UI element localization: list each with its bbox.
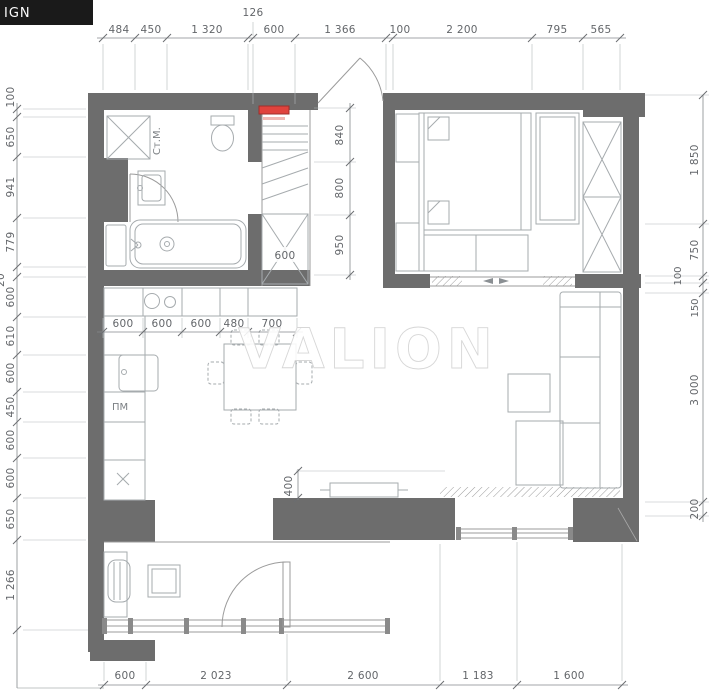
dim-closet: 600 xyxy=(275,250,296,262)
dim-right-0: 1 850 xyxy=(689,144,701,176)
dim-left-7: 450 xyxy=(5,397,17,418)
dim-top-3: 600 xyxy=(264,24,285,36)
dim-left-6: 600 xyxy=(5,363,17,384)
dim-top-4: 1 366 xyxy=(324,24,356,36)
dim-right-2: 100 xyxy=(673,266,684,285)
dim-kitchen-1: 600 xyxy=(152,318,173,330)
sofa xyxy=(560,292,621,488)
duct-shaft xyxy=(104,158,128,222)
dim-top-7: 795 xyxy=(547,24,568,36)
dresser xyxy=(536,113,579,224)
dim-bottom-3: 1 183 xyxy=(462,670,494,682)
partition-hatch-right xyxy=(543,276,572,286)
dim-hall-2: 950 xyxy=(334,235,346,256)
desk xyxy=(104,552,127,617)
partition-hatch-left xyxy=(432,276,462,286)
dim-top-secondary: 126 xyxy=(243,7,264,19)
media-wall xyxy=(273,498,455,540)
dim-left-3: 779 xyxy=(5,232,17,253)
wall-bedroom-bottom-left xyxy=(383,274,430,288)
dim-bottom-0: 600 xyxy=(115,670,136,682)
side-table xyxy=(148,565,180,597)
wardrobe xyxy=(583,122,621,272)
pier-left xyxy=(104,500,155,542)
dim-tv-wall: 400 xyxy=(283,476,295,497)
dim-right-5: 200 xyxy=(689,499,701,520)
dishwasher-label: ПМ xyxy=(112,402,128,413)
floor-plan-drawing: 484 450 1 320 126 600 1 366 100 2 200 79… xyxy=(0,0,716,699)
dim-top-0: 484 xyxy=(109,24,130,36)
kitchen-sink-unit xyxy=(119,355,158,391)
sliding-door-arrows xyxy=(483,278,509,284)
floor-plan-page: 484 450 1 320 126 600 1 366 100 2 200 79… xyxy=(0,0,716,699)
dim-bottom-1: 2 023 xyxy=(200,670,232,682)
hob-cross xyxy=(117,473,129,485)
dim-left-clipped: 20 xyxy=(0,273,7,287)
toilet xyxy=(211,116,234,151)
dim-top-2: 1 320 xyxy=(191,24,223,36)
dim-left-4: 600 xyxy=(5,287,17,308)
entrance-door-leaf xyxy=(318,58,360,103)
dim-left-1: 650 xyxy=(5,127,17,148)
bed xyxy=(419,113,531,271)
dim-top-5: 100 xyxy=(390,24,411,36)
closet-shelves xyxy=(262,126,308,200)
nightstand-top xyxy=(396,114,419,162)
dim-right-3: 150 xyxy=(690,298,701,317)
wall-bathroom-right-upper xyxy=(248,110,262,162)
entrance-door-swing xyxy=(360,58,383,101)
wall-bedroom-bottom-right xyxy=(575,274,641,288)
bath-cabinet xyxy=(106,225,126,266)
balcony-door-swing xyxy=(222,562,287,627)
dim-top-1: 450 xyxy=(141,24,162,36)
wall-bathroom-right-lower xyxy=(248,214,262,286)
radiator-pipe xyxy=(263,117,285,120)
dim-right-1: 750 xyxy=(689,240,701,261)
wall-right xyxy=(623,110,639,542)
coffee-table xyxy=(508,374,550,412)
tv xyxy=(320,483,408,497)
logo-text: IGN xyxy=(4,6,31,21)
pier-bottom-left xyxy=(90,640,155,661)
dim-kitchen-0: 600 xyxy=(113,318,134,330)
dim-left-2: 941 xyxy=(5,177,17,198)
bathroom-door-swing xyxy=(130,174,178,222)
balcony-door-leaf xyxy=(283,562,290,627)
dim-left-0: 100 xyxy=(5,87,17,108)
sink xyxy=(138,171,166,205)
dim-kitchen-2: 600 xyxy=(191,318,212,330)
pier-right xyxy=(573,498,639,542)
dim-bottom-4: 1 600 xyxy=(553,670,585,682)
dim-left-10: 650 xyxy=(5,509,17,530)
nightstand-bottom xyxy=(396,223,419,271)
towel-radiator xyxy=(259,106,289,114)
kitchen-counter-top xyxy=(104,288,297,316)
dim-top-6: 2 200 xyxy=(446,24,478,36)
wall-bedroom-left xyxy=(383,110,395,277)
dim-hall-0: 840 xyxy=(334,125,346,146)
washing-machine xyxy=(107,116,150,159)
cooktop xyxy=(145,294,176,309)
dim-left-8: 600 xyxy=(5,430,17,451)
dim-hall-1: 800 xyxy=(334,178,346,199)
watermark: VALION xyxy=(238,317,498,381)
window-posts xyxy=(102,527,573,634)
ottoman xyxy=(516,421,563,485)
logo: IGN xyxy=(0,0,93,25)
bed-bench xyxy=(424,235,528,271)
dim-bottom-2: 2 600 xyxy=(347,670,379,682)
washing-machine-label: Ст.М. xyxy=(152,127,163,155)
bathtub xyxy=(130,220,246,268)
dim-left-11: 1 266 xyxy=(5,569,17,601)
dim-right-4: 3 000 xyxy=(689,374,701,406)
dim-top-8: 565 xyxy=(591,24,612,36)
dim-left-5: 610 xyxy=(5,326,17,347)
wall-left xyxy=(88,93,104,652)
dim-left-9: 600 xyxy=(5,468,17,489)
